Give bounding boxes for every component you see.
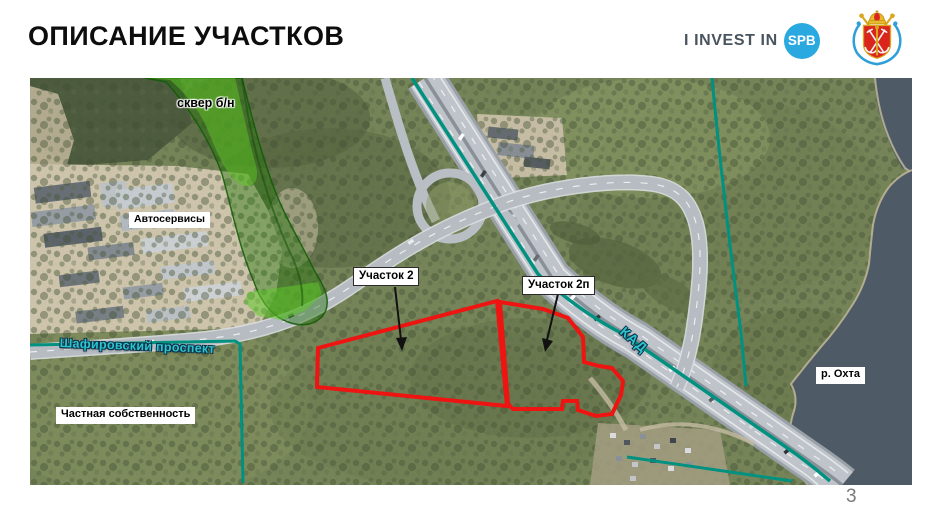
invest-in-spb-logo: I INVEST IN SPB <box>684 22 820 59</box>
label-autoservices: Автосервисы <box>129 212 210 228</box>
label-okhta-river: р. Охта <box>816 367 865 384</box>
label-private-property: Частная собственность <box>56 407 195 424</box>
aerial-map: сквер б/н Автосервисы Участок 2 Участок … <box>30 78 912 485</box>
aerial-map-svg <box>30 78 912 485</box>
logo-text: I INVEST IN <box>684 32 778 50</box>
page-number: 3 <box>846 486 857 508</box>
spb-coat-of-arms-icon <box>849 9 905 67</box>
crest-crown <box>868 10 885 24</box>
spb-badge: SPB <box>784 23 820 59</box>
label-skver: сквер б/н <box>177 96 235 112</box>
page-title: ОПИСАНИЕ УЧАСТКОВ <box>28 21 344 52</box>
label-parcel-2p: Участок 2п <box>522 276 595 295</box>
slide: ОПИСАНИЕ УЧАСТКОВ I INVEST IN SPB <box>0 0 930 525</box>
label-parcel-2: Участок 2 <box>353 267 419 286</box>
